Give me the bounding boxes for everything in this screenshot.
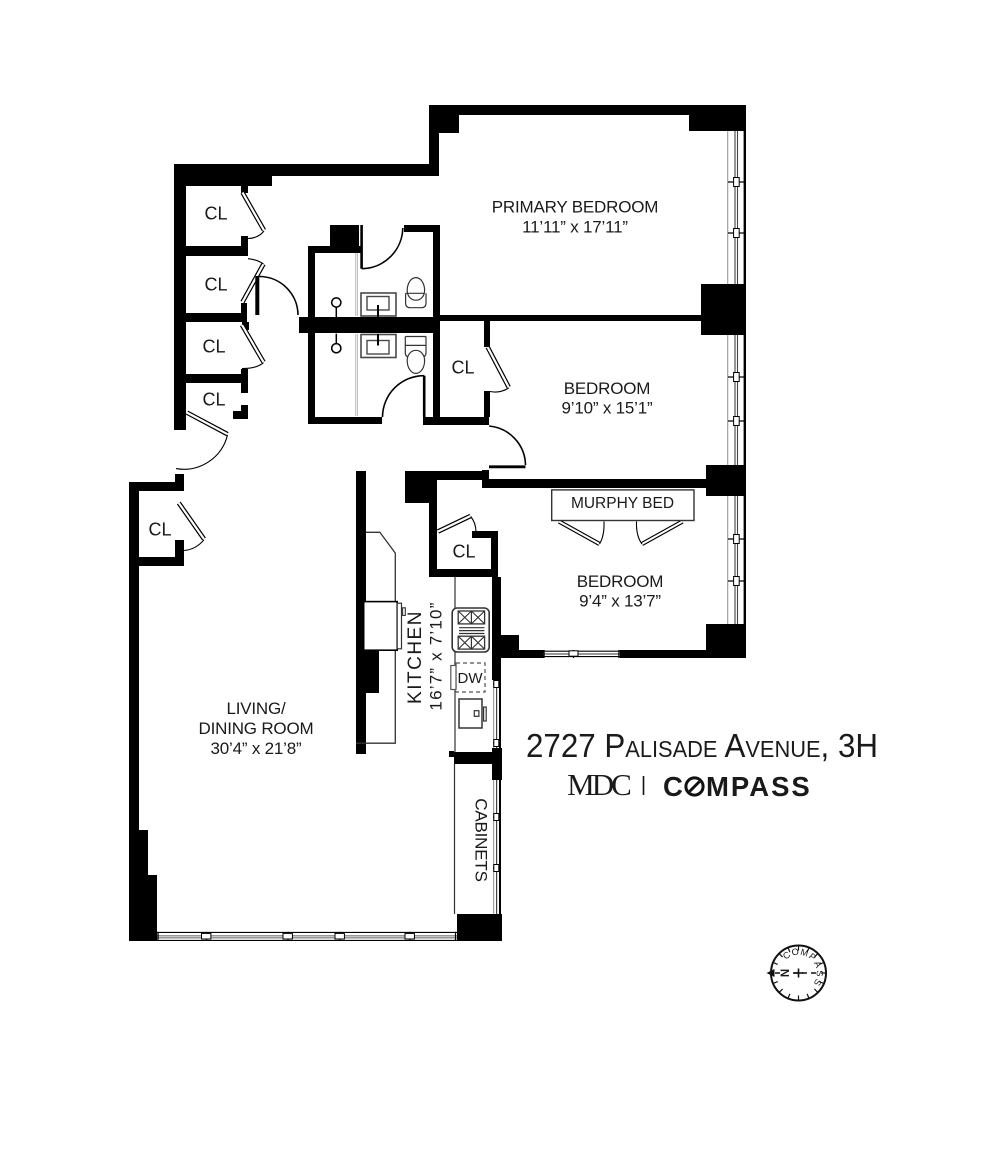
svg-text:9’10” x 15’1”: 9’10” x 15’1” [562, 399, 653, 418]
svg-text:30’4” x 21’8”: 30’4” x 21’8” [211, 739, 302, 758]
svg-text:MDC: MDC [567, 767, 630, 802]
svg-text:MURPHY BED: MURPHY BED [571, 495, 674, 512]
svg-text:CL: CL [451, 358, 474, 378]
svg-text:N: N [780, 969, 792, 977]
svg-text:2727 Palisade Avenue, 3H: 2727 Palisade Avenue, 3H [526, 727, 878, 764]
svg-text:DW: DW [458, 670, 484, 687]
svg-text:S: S [815, 970, 825, 976]
svg-text:C: C [663, 771, 685, 802]
svg-text:PRIMARY BEDROOM: PRIMARY BEDROOM [492, 198, 658, 217]
svg-text:MPASS: MPASS [706, 771, 812, 802]
svg-text:CL: CL [452, 542, 475, 562]
svg-text:LIVING/: LIVING/ [226, 699, 286, 718]
svg-text:CL: CL [204, 204, 227, 224]
svg-text:9’4” x 13’7”: 9’4” x 13’7” [579, 592, 661, 611]
svg-text:DINING ROOM: DINING ROOM [199, 719, 314, 738]
svg-text:CL: CL [148, 520, 171, 540]
svg-text:CL: CL [202, 337, 225, 357]
svg-text:CL: CL [202, 390, 225, 410]
svg-text:11’11” x 17’11”: 11’11” x 17’11” [522, 218, 628, 237]
svg-text:A: A [812, 960, 824, 970]
svg-text:S: S [812, 977, 824, 987]
svg-text:BEDROOM: BEDROOM [564, 379, 650, 398]
svg-text:CL: CL [204, 275, 227, 295]
svg-text:BEDROOM: BEDROOM [577, 572, 663, 591]
svg-text:KITCHEN: KITCHEN [405, 610, 426, 704]
svg-text:CABINETS: CABINETS [472, 798, 491, 881]
svg-text:16’7” x 7’10”: 16’7” x 7’10” [427, 601, 446, 710]
